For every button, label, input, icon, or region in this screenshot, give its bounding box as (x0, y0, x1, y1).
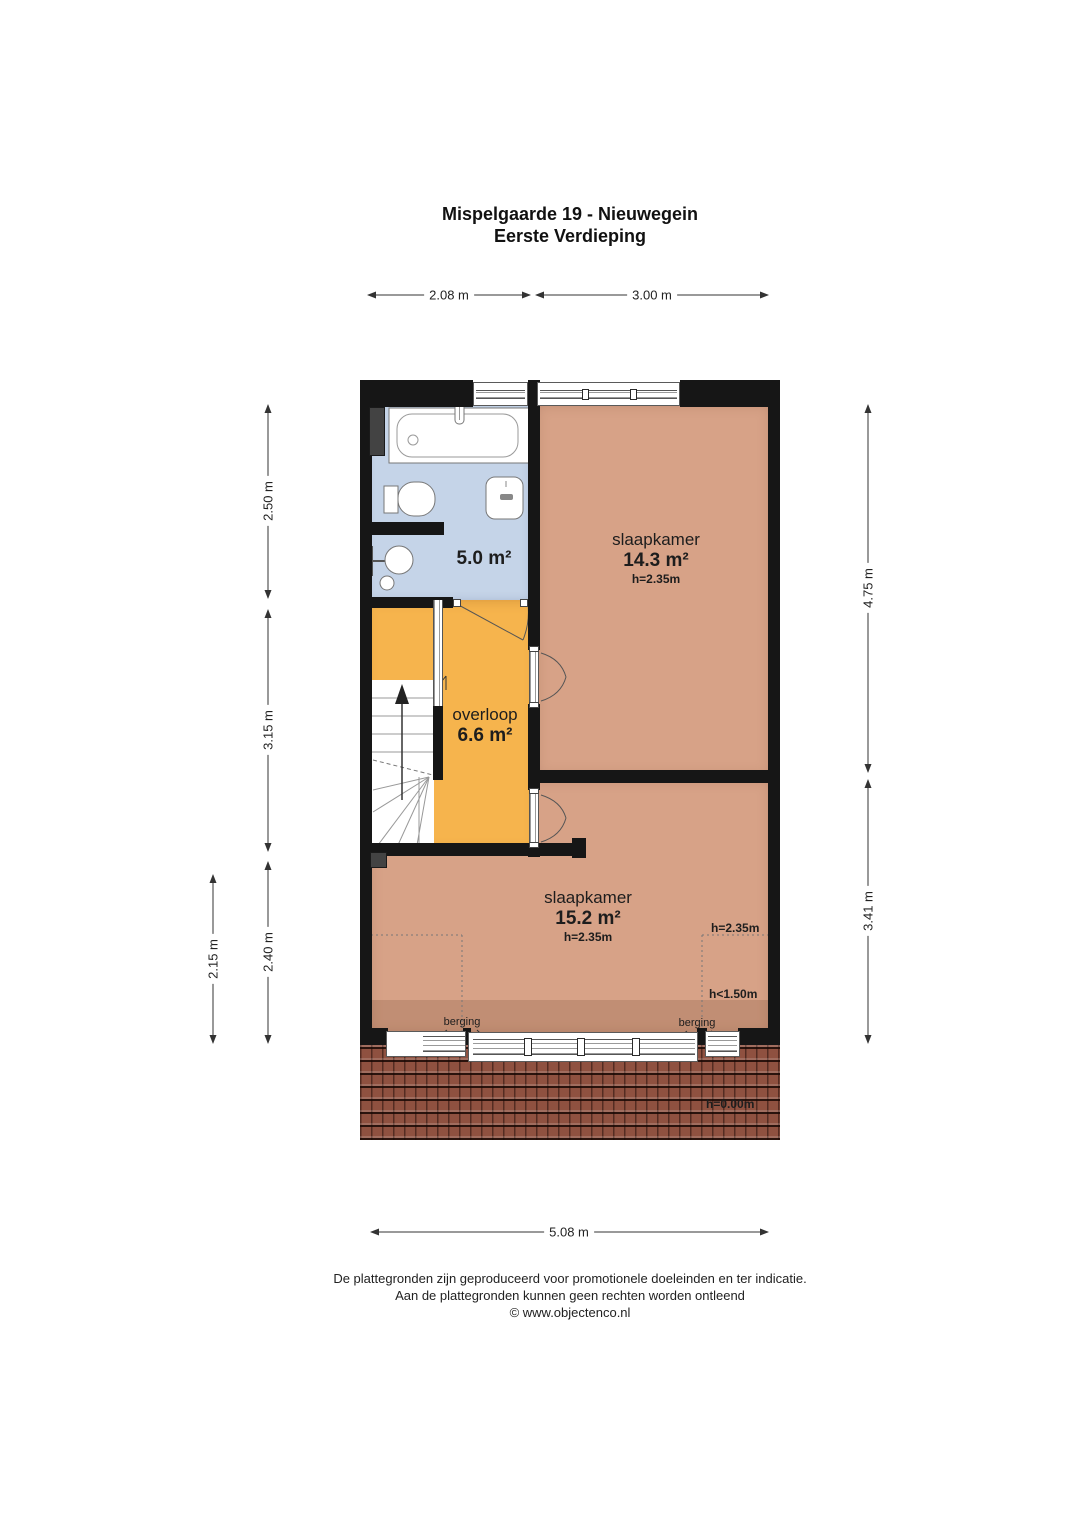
plan-title: Mispelgaarde 19 - Nieuwegein Eerste Verd… (140, 203, 1000, 247)
wall-toilet-stub (360, 522, 444, 535)
bedroom-bottom-height: h=2.35m (544, 930, 632, 944)
window-top-bathroom (473, 382, 528, 406)
disclaimer-line1: De plattegronden zijn geproduceerd voor … (140, 1270, 1000, 1287)
annotation-berging-left: berging (444, 1016, 481, 1028)
staircase-area (371, 680, 434, 846)
dim-right-2: 3.41 m (861, 886, 876, 936)
label-bedroom-top: slaapkamer 14.3 m² h=2.35m (612, 530, 700, 586)
dim-top-left: 2.08 m (424, 288, 474, 303)
disclaimer-line2: Aan de plattegronden kunnen geen rechten… (140, 1287, 1000, 1304)
annotation-h150: h<1.50m (709, 987, 757, 1001)
landing-area: 6.6 m² (452, 725, 517, 747)
bedroom-bottom-area: 15.2 m² (544, 908, 632, 930)
duct-shaft-bottom (370, 852, 387, 868)
dim-left-outer: 2.15 m (206, 934, 221, 984)
annotation-h000: h=0.00m (706, 1097, 754, 1111)
window-bottom-large (468, 1032, 698, 1062)
dim-left-2: 3.15 m (261, 705, 276, 755)
stair-railing (433, 600, 443, 706)
door-leaf-bedroom-top (529, 651, 539, 703)
bedroom-top-area: 14.3 m² (612, 550, 700, 572)
wall-stairs (433, 704, 443, 780)
annotation-berging-right: berging (679, 1017, 716, 1029)
bathroom-area: 5.0 m² (457, 548, 512, 570)
window-bottom-small-left (386, 1031, 466, 1057)
wall-landing-south-nub (572, 838, 586, 858)
wall-left (360, 380, 372, 1043)
wall-top-left (360, 380, 473, 407)
dim-left-1: 2.50 m (261, 476, 276, 526)
door-leaf-bedroom-bottom (529, 793, 539, 843)
disclaimer-line3: © www.objectenco.nl (140, 1304, 1000, 1321)
dim-left-3: 2.40 m (261, 927, 276, 977)
window-top-bedroom (537, 382, 680, 406)
wall-bottom-right (738, 1028, 780, 1045)
floorplan-canvas: Mispelgaarde 19 - Nieuwegein Eerste Verd… (0, 0, 1080, 1527)
bedroom-bottom-name: slaapkamer (544, 888, 632, 908)
label-bedroom-bottom: slaapkamer 15.2 m² h=2.35m (544, 888, 632, 944)
wall-right (768, 380, 780, 1043)
wall-top-right (680, 380, 780, 407)
window-bottom-small-right (705, 1031, 740, 1057)
label-bathroom: 5.0 m² (457, 548, 512, 570)
dim-bottom: 5.08 m (544, 1225, 594, 1240)
label-landing: overloop 6.6 m² (452, 705, 517, 747)
room-bedroom-top (532, 400, 775, 780)
dim-right-1: 4.75 m (861, 563, 876, 613)
room-bathroom (365, 400, 532, 602)
annotation-h235: h=2.35m (711, 921, 759, 935)
disclaimer: De plattegronden zijn geproduceerd voor … (140, 1270, 1000, 1321)
bedroom-top-height: h=2.35m (612, 572, 700, 586)
dim-top-right: 3.00 m (627, 288, 677, 303)
wall-landing-south (360, 843, 586, 856)
wall-bottom-left (360, 1028, 388, 1045)
wall-landing-east-upper (528, 380, 540, 650)
duct-shaft-top (369, 407, 385, 456)
plan-title-address: Mispelgaarde 19 - Nieuwegein (140, 203, 1000, 225)
bedroom-top-name: slaapkamer (612, 530, 700, 550)
wall-between-bedrooms (528, 770, 780, 783)
plan-title-floor: Eerste Verdieping (140, 225, 1000, 247)
landing-name: overloop (452, 705, 517, 725)
